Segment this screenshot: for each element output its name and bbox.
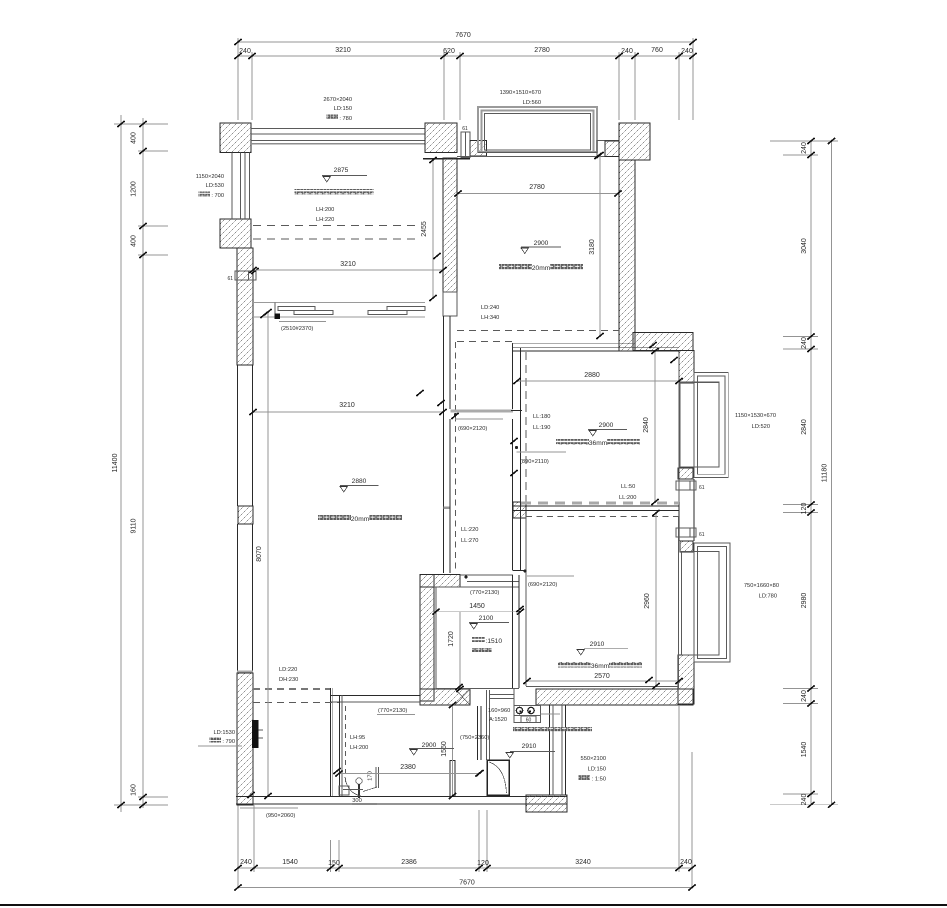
svg-text:: 1:50: : 1:50 — [592, 777, 606, 783]
svg-text:LL:190: LL:190 — [533, 425, 550, 431]
svg-text:LD:220: LD:220 — [279, 667, 297, 673]
svg-text:(2510#2370): (2510#2370) — [281, 326, 313, 332]
svg-text:3240: 3240 — [575, 859, 591, 866]
svg-text:8070: 8070 — [256, 546, 263, 562]
svg-text:2780: 2780 — [534, 47, 550, 54]
svg-text:LH:200: LH:200 — [316, 207, 334, 213]
svg-text:2910: 2910 — [522, 743, 537, 750]
svg-text:2570: 2570 — [594, 673, 610, 680]
svg-text:2380: 2380 — [400, 764, 416, 771]
svg-text:2875: 2875 — [334, 167, 349, 174]
svg-text:240: 240 — [801, 337, 808, 349]
svg-text:1560: 1560 — [441, 741, 448, 757]
svg-text:750×1660×80: 750×1660×80 — [744, 583, 779, 589]
svg-text:2900: 2900 — [599, 422, 614, 429]
svg-text:(950×2060): (950×2060) — [266, 813, 295, 819]
svg-text:400: 400 — [131, 132, 138, 144]
svg-text:61: 61 — [699, 485, 705, 491]
svg-text:(890×2110): (890×2110) — [520, 459, 549, 465]
svg-text:61: 61 — [462, 126, 468, 132]
svg-text:1540: 1540 — [282, 859, 298, 866]
svg-text:2840: 2840 — [643, 417, 650, 433]
svg-text:(750×2360): (750×2360) — [460, 735, 489, 741]
svg-text:LH:200: LH:200 — [350, 745, 368, 751]
svg-text:7670: 7670 — [455, 32, 471, 39]
svg-text:60: 60 — [526, 718, 532, 724]
svg-text:240: 240 — [621, 48, 633, 55]
svg-text:3040: 3040 — [801, 238, 808, 254]
svg-text:20mm: 20mm — [351, 516, 370, 523]
svg-text:550×2100: 550×2100 — [581, 756, 606, 762]
svg-text:2100: 2100 — [479, 615, 494, 622]
svg-text:400: 400 — [131, 235, 138, 247]
svg-text:1720: 1720 — [448, 631, 455, 647]
svg-text:1540: 1540 — [801, 742, 808, 758]
svg-text:LL:50: LL:50 — [621, 484, 635, 490]
svg-text:LL:180: LL:180 — [533, 414, 550, 420]
svg-text:LD:150: LD:150 — [334, 106, 352, 112]
svg-text:2670×2040: 2670×2040 — [323, 97, 352, 103]
svg-text:120: 120 — [477, 860, 489, 867]
svg-text:A:1520: A:1520 — [489, 717, 507, 723]
svg-text:11180: 11180 — [822, 464, 829, 483]
svg-text:36mm: 36mm — [591, 663, 610, 670]
svg-text:240: 240 — [680, 859, 692, 866]
svg-text:2386: 2386 — [401, 859, 417, 866]
svg-text:LD:520: LD:520 — [752, 424, 770, 430]
svg-text:(690×2120): (690×2120) — [528, 582, 557, 588]
svg-text:620: 620 — [443, 48, 455, 55]
svg-text:2980: 2980 — [801, 593, 808, 609]
svg-text:36mm: 36mm — [589, 440, 608, 447]
svg-text:3210: 3210 — [340, 261, 356, 268]
svg-text:LD:1530: LD:1530 — [213, 730, 235, 736]
svg-text:LL:220: LL:220 — [461, 527, 478, 533]
svg-text:2960: 2960 — [644, 593, 651, 609]
svg-text:2455: 2455 — [421, 221, 428, 237]
svg-text:2900: 2900 — [422, 742, 437, 749]
svg-text:61: 61 — [699, 532, 705, 538]
svg-text:LD:560: LD:560 — [523, 100, 541, 106]
svg-text:LL:200: LL:200 — [619, 495, 636, 501]
svg-text:7670: 7670 — [459, 880, 475, 887]
svg-text:160×960: 160×960 — [488, 708, 510, 714]
svg-text:2910: 2910 — [590, 641, 605, 648]
svg-text:LD:150: LD:150 — [588, 767, 606, 773]
svg-text:170: 170 — [368, 771, 374, 781]
svg-text:120: 120 — [801, 503, 808, 515]
svg-text:61: 61 — [227, 276, 233, 282]
svg-text:1450: 1450 — [469, 603, 485, 610]
svg-text:LL:270: LL:270 — [461, 538, 478, 544]
svg-text:1150×1530×670: 1150×1530×670 — [735, 413, 776, 419]
svg-text:: 700: : 700 — [211, 193, 224, 199]
svg-text:1390×1510×670: 1390×1510×670 — [500, 90, 541, 96]
svg-text:DH:230: DH:230 — [279, 677, 298, 683]
svg-text:240: 240 — [239, 48, 251, 55]
svg-text:LD:530: LD:530 — [206, 183, 224, 189]
svg-text:: 790: : 790 — [222, 739, 235, 745]
svg-text:20mm: 20mm — [532, 265, 551, 272]
svg-text:2880: 2880 — [584, 372, 600, 379]
svg-text:150: 150 — [328, 860, 340, 867]
svg-text:2900: 2900 — [534, 240, 549, 247]
svg-text:LH:95: LH:95 — [350, 735, 365, 741]
svg-text:240: 240 — [801, 690, 808, 702]
svg-text:1200: 1200 — [131, 181, 138, 197]
svg-text:2780: 2780 — [529, 184, 545, 191]
svg-text:240: 240 — [801, 142, 808, 154]
svg-text:3210: 3210 — [339, 402, 355, 409]
svg-text:(770×2130): (770×2130) — [378, 708, 407, 714]
svg-text:LH:220: LH:220 — [316, 217, 334, 223]
svg-text:240: 240 — [801, 794, 808, 806]
svg-text:LH:340: LH:340 — [481, 315, 499, 321]
svg-text:760: 760 — [651, 47, 663, 54]
svg-text:11400: 11400 — [112, 453, 119, 472]
svg-text:240: 240 — [681, 48, 693, 55]
svg-text:: 780: : 780 — [339, 116, 352, 122]
svg-text:(770×2130): (770×2130) — [470, 590, 499, 596]
svg-text:(690×2120): (690×2120) — [458, 426, 487, 432]
svg-text:3210: 3210 — [335, 47, 351, 54]
svg-text:2840: 2840 — [801, 419, 808, 435]
svg-text:160: 160 — [131, 784, 138, 796]
svg-text:3180: 3180 — [589, 239, 596, 255]
svg-text:LD:780: LD:780 — [759, 594, 777, 600]
svg-text::1510: :1510 — [486, 638, 503, 645]
svg-text:LD:240: LD:240 — [481, 305, 499, 311]
svg-text:2880: 2880 — [352, 478, 367, 485]
svg-text:240: 240 — [240, 859, 252, 866]
svg-text:9110: 9110 — [131, 518, 138, 533]
svg-text:1150×2040: 1150×2040 — [196, 174, 224, 180]
